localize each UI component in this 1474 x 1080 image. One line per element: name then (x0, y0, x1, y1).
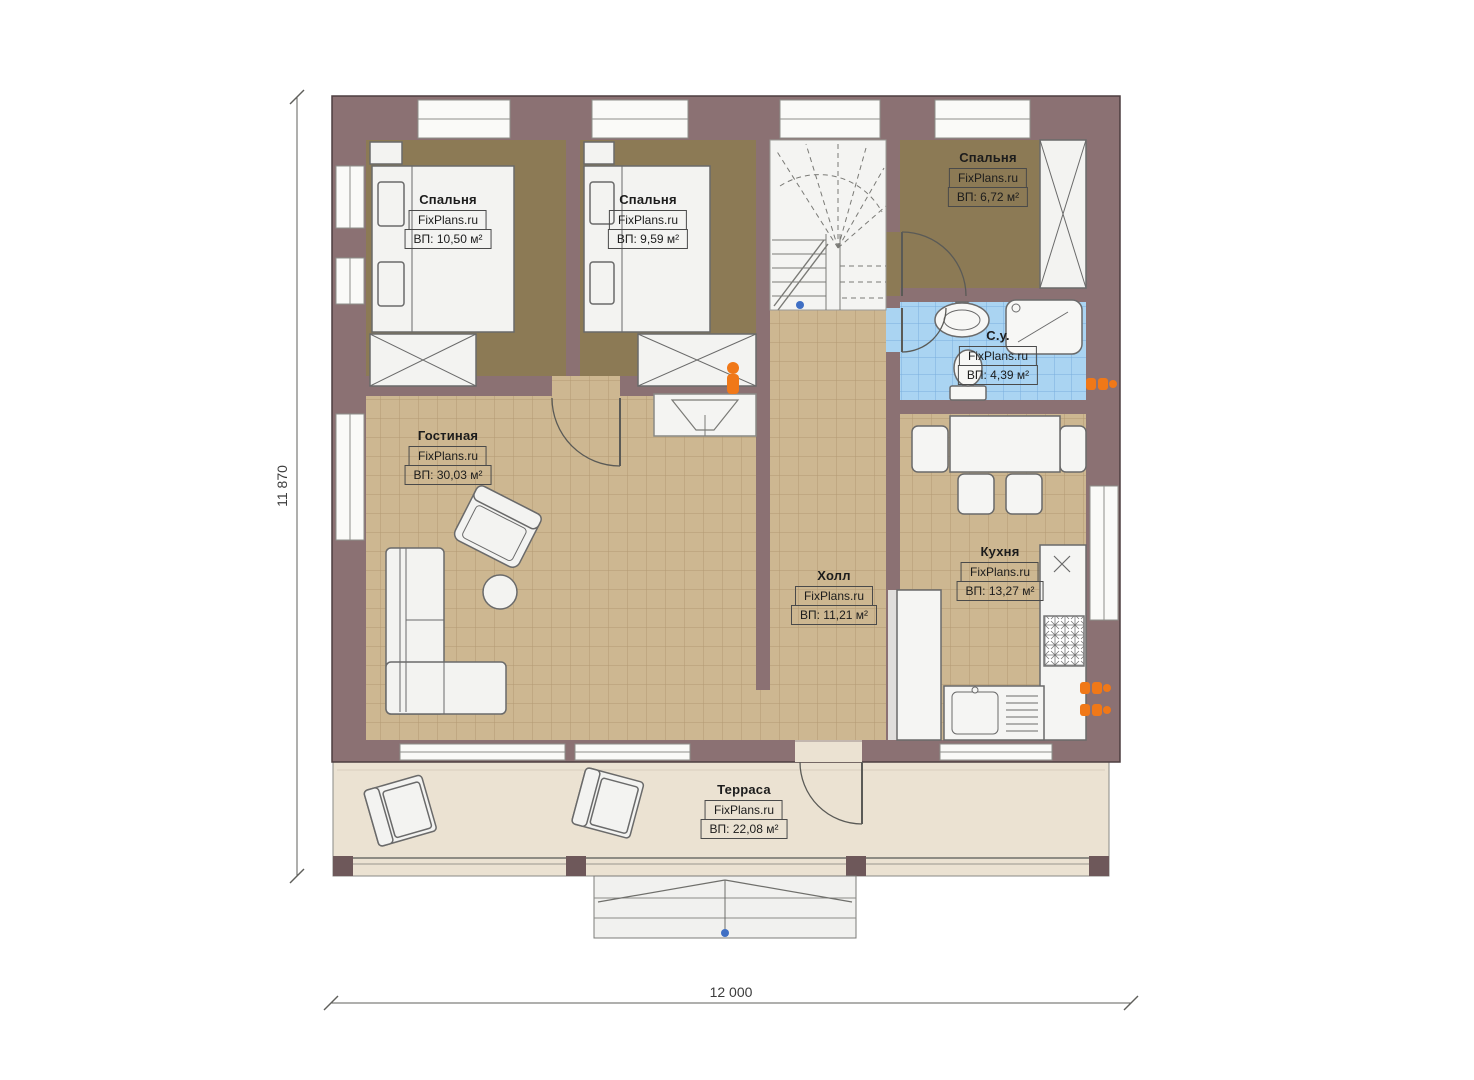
label-bathroom: С.у. FixPlans.ru ВП: 4,39 м² (958, 328, 1038, 385)
kitchen-counter-right (1040, 545, 1086, 740)
label-kitchen: Кухня FixPlans.ru ВП: 13,27 м² (957, 544, 1044, 601)
watermark: FixPlans.ru (795, 586, 873, 606)
window-top-1 (418, 100, 510, 138)
window-left-3 (336, 414, 364, 540)
stove (1044, 616, 1084, 666)
room-title: Терраса (717, 782, 771, 797)
chair (1060, 426, 1086, 472)
radiator-living (727, 362, 739, 394)
chair (912, 426, 948, 472)
room-title: Холл (817, 568, 850, 583)
chair (1006, 474, 1042, 514)
window-top-4 (935, 100, 1030, 138)
stair-marker-dot (796, 301, 804, 309)
floor-plan-page: Спальня FixPlans.ru ВП: 10,50 м² Спальня… (0, 0, 1474, 1080)
bedroom3-furniture (1040, 140, 1086, 288)
dining-table (950, 416, 1060, 472)
window-right-1 (1090, 486, 1118, 620)
watermark: FixPlans.ru (409, 210, 487, 230)
room-area: ВП: 10,50 м² (405, 229, 492, 249)
watermark: FixPlans.ru (609, 210, 687, 230)
watermark: FixPlans.ru (949, 168, 1027, 188)
window-bottom-3 (940, 744, 1052, 760)
room-title: Кухня (981, 544, 1020, 559)
dimension-height: 11 870 (274, 465, 290, 507)
room-area: ВП: 22,08 м² (701, 819, 788, 839)
fireplace (654, 394, 756, 436)
room-title: Гостиная (418, 428, 478, 443)
stairwell-floor (770, 140, 886, 310)
room-area: ВП: 4,39 м² (958, 365, 1038, 385)
dimension-line-left (290, 90, 304, 883)
room-area: ВП: 9,59 м² (608, 229, 688, 249)
nightstand (584, 142, 614, 164)
window-left-1 (336, 166, 364, 228)
dimension-width: 12 000 (710, 984, 753, 1000)
room-area: ВП: 11,21 м² (791, 605, 877, 625)
room-area: ВП: 30,03 м² (405, 465, 492, 485)
label-living: Гостиная FixPlans.ru ВП: 30,03 м² (405, 428, 492, 485)
entrance-steps (594, 876, 856, 938)
window-left-2 (336, 258, 364, 304)
coffee-table (483, 575, 517, 609)
label-bedroom2: Спальня FixPlans.ru ВП: 9,59 м² (608, 192, 688, 249)
pillow (378, 262, 404, 306)
floor-plan-drawing (0, 0, 1474, 1080)
kitchen-counter-left (897, 590, 941, 740)
window-bottom-2 (575, 744, 690, 760)
room-area: ВП: 13,27 м² (957, 581, 1044, 601)
room-area: ВП: 6,72 м² (948, 187, 1028, 207)
room-title: Спальня (419, 192, 477, 207)
window-top-2 (592, 100, 688, 138)
room-title: Спальня (619, 192, 677, 207)
label-bedroom3: Спальня FixPlans.ru ВП: 6,72 м² (948, 150, 1028, 207)
chair (958, 474, 994, 514)
room-title: С.у. (986, 328, 1010, 343)
watermark: FixPlans.ru (409, 446, 487, 466)
pillow (378, 182, 404, 226)
hall-floor (770, 310, 886, 740)
watermark: FixPlans.ru (959, 346, 1037, 366)
label-hall: Холл FixPlans.ru ВП: 11,21 м² (791, 568, 877, 625)
room-title: Спальня (959, 150, 1017, 165)
step-marker-dot (721, 929, 729, 937)
window-bottom-1 (400, 744, 565, 760)
pillow (590, 262, 614, 304)
watermark: FixPlans.ru (705, 800, 783, 820)
window-top-3 (780, 100, 880, 138)
label-terrace: Терраса FixPlans.ru ВП: 22,08 м² (701, 782, 788, 839)
nightstand (370, 142, 402, 164)
watermark: FixPlans.ru (961, 562, 1039, 582)
label-bedroom1: Спальня FixPlans.ru ВП: 10,50 м² (405, 192, 492, 249)
kitchen-sink-unit (944, 686, 1044, 740)
